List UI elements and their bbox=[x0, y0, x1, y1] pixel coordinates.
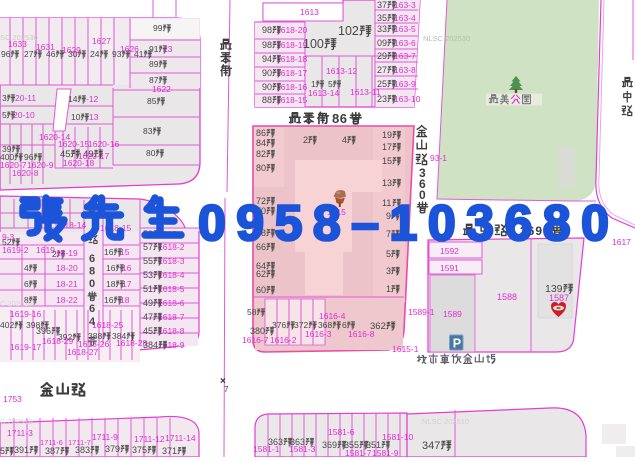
svg-text:94: 94 bbox=[262, 54, 272, 64]
svg-text:8: 8 bbox=[89, 266, 95, 278]
svg-text:6: 6 bbox=[89, 253, 95, 265]
svg-text:86: 86 bbox=[332, 111, 347, 126]
svg-text:1622: 1622 bbox=[152, 84, 171, 94]
svg-text:1753: 1753 bbox=[3, 394, 22, 404]
svg-text:18-21: 18-21 bbox=[56, 279, 78, 289]
svg-text:80: 80 bbox=[146, 148, 156, 158]
svg-text:163-8: 163-8 bbox=[394, 65, 416, 75]
svg-text:55: 55 bbox=[143, 256, 153, 266]
svg-text:376: 376 bbox=[272, 320, 286, 330]
svg-text:7: 7 bbox=[224, 385, 229, 394]
svg-text:1620-8: 1620-8 bbox=[12, 168, 39, 178]
svg-text:1616-8: 1616-8 bbox=[348, 329, 375, 339]
svg-text:1588: 1588 bbox=[497, 292, 517, 302]
svg-text:60: 60 bbox=[256, 285, 266, 295]
svg-text:53: 53 bbox=[143, 270, 153, 280]
svg-text:1613-12: 1613-12 bbox=[326, 66, 357, 76]
svg-text:33: 33 bbox=[377, 24, 387, 34]
svg-text:1618-7: 1618-7 bbox=[158, 312, 185, 322]
svg-text:102: 102 bbox=[338, 24, 359, 38]
svg-text:1616-7: 1616-7 bbox=[242, 335, 269, 345]
svg-text:96: 96 bbox=[1, 49, 11, 59]
svg-text:1613-14: 1613-14 bbox=[308, 88, 339, 98]
svg-text:1613: 1613 bbox=[300, 7, 319, 17]
svg-text:1627: 1627 bbox=[92, 36, 111, 46]
svg-text:1620-18: 1620-18 bbox=[63, 158, 94, 168]
svg-text:0958–103680: 0958–103680 bbox=[198, 195, 619, 251]
svg-text:98: 98 bbox=[262, 40, 272, 50]
svg-text:24: 24 bbox=[90, 49, 100, 59]
svg-text:163-7: 163-7 bbox=[394, 51, 416, 61]
svg-text:1581-10: 1581-10 bbox=[382, 432, 413, 442]
svg-text:47: 47 bbox=[143, 312, 153, 322]
svg-text:09: 09 bbox=[377, 38, 387, 48]
svg-text:1711-14: 1711-14 bbox=[165, 433, 196, 443]
svg-text:1615-1: 1615-1 bbox=[392, 344, 419, 354]
svg-text:23: 23 bbox=[377, 94, 387, 104]
svg-text:23: 23 bbox=[163, 44, 173, 54]
svg-text:16: 16 bbox=[122, 263, 132, 273]
svg-text:51: 51 bbox=[143, 284, 153, 294]
svg-text:18-19: 18-19 bbox=[56, 248, 78, 258]
svg-text:37: 37 bbox=[377, 0, 387, 10]
svg-text:1589: 1589 bbox=[443, 309, 462, 319]
svg-text:1: 1 bbox=[386, 284, 391, 294]
svg-text:98: 98 bbox=[262, 25, 272, 35]
svg-text:SC 202530: SC 202530 bbox=[0, 33, 38, 42]
svg-text:88: 88 bbox=[262, 95, 272, 105]
svg-text:1616-3: 1616-3 bbox=[305, 329, 332, 339]
svg-text:99: 99 bbox=[153, 23, 163, 33]
svg-text:4: 4 bbox=[24, 263, 29, 273]
svg-text:1618-15: 1618-15 bbox=[100, 223, 131, 233]
svg-text:C 202510: C 202510 bbox=[0, 417, 33, 426]
svg-text:-12: -12 bbox=[86, 94, 99, 104]
svg-text:83: 83 bbox=[143, 126, 153, 136]
svg-text:4: 4 bbox=[89, 316, 96, 328]
svg-text:45: 45 bbox=[143, 326, 153, 336]
svg-text:1620-15: 1620-15 bbox=[58, 139, 89, 149]
svg-text:NLSC 202530: NLSC 202530 bbox=[423, 34, 470, 43]
svg-text:3: 3 bbox=[2, 93, 7, 103]
svg-text:1619-17: 1619-17 bbox=[10, 342, 41, 352]
svg-text:16: 16 bbox=[104, 247, 114, 257]
svg-text:49: 49 bbox=[143, 298, 153, 308]
svg-text:375: 375 bbox=[132, 445, 147, 455]
svg-text:163-10: 163-10 bbox=[394, 94, 421, 104]
svg-text:163-4: 163-4 bbox=[394, 13, 416, 23]
svg-text:15: 15 bbox=[120, 247, 130, 257]
svg-text:402: 402 bbox=[0, 320, 14, 330]
svg-text:1618-8: 1618-8 bbox=[158, 326, 185, 336]
svg-text:0: 0 bbox=[89, 278, 95, 290]
svg-text:13: 13 bbox=[382, 178, 392, 188]
svg-text:9-3: 9-3 bbox=[2, 232, 15, 242]
svg-text:1620-16: 1620-16 bbox=[88, 139, 119, 149]
svg-text:84: 84 bbox=[256, 138, 266, 148]
svg-text:371: 371 bbox=[162, 446, 177, 456]
svg-text:15: 15 bbox=[382, 156, 392, 166]
svg-text:85: 85 bbox=[147, 96, 157, 106]
svg-text:13: 13 bbox=[89, 112, 99, 122]
svg-text:86: 86 bbox=[256, 128, 266, 138]
svg-text:100: 100 bbox=[303, 37, 324, 51]
svg-text:14: 14 bbox=[68, 94, 78, 104]
svg-text:1587: 1587 bbox=[549, 293, 569, 303]
svg-text:347: 347 bbox=[422, 440, 440, 452]
svg-text:6: 6 bbox=[24, 279, 29, 289]
svg-text:1618-5: 1618-5 bbox=[158, 284, 185, 294]
svg-text:383: 383 bbox=[75, 445, 90, 455]
svg-text:1581-3: 1581-3 bbox=[289, 444, 316, 454]
svg-text:91: 91 bbox=[149, 44, 159, 54]
svg-text:18-20: 18-20 bbox=[56, 263, 78, 273]
svg-text:2: 2 bbox=[303, 135, 308, 145]
svg-text:1618-6: 1618-6 bbox=[158, 298, 185, 308]
svg-text:163-3: 163-3 bbox=[394, 0, 416, 10]
svg-text:19: 19 bbox=[382, 130, 392, 140]
svg-text:163-6: 163-6 bbox=[394, 38, 416, 48]
svg-text:93-1: 93-1 bbox=[430, 153, 447, 163]
svg-text:1618-4: 1618-4 bbox=[158, 270, 185, 280]
svg-text:1631: 1631 bbox=[36, 42, 55, 52]
svg-text:20-10: 20-10 bbox=[13, 110, 35, 120]
svg-text:369: 369 bbox=[322, 440, 337, 450]
svg-text:1581-6: 1581-6 bbox=[328, 427, 355, 437]
svg-text:396: 396 bbox=[36, 326, 51, 336]
svg-text:1581-9: 1581-9 bbox=[372, 448, 399, 457]
svg-text:58: 58 bbox=[247, 307, 257, 317]
svg-text:1616-2: 1616-2 bbox=[270, 335, 297, 345]
svg-text:163-9: 163-9 bbox=[394, 79, 416, 89]
svg-text:80: 80 bbox=[256, 163, 266, 173]
svg-text:1589-1: 1589-1 bbox=[408, 307, 435, 317]
svg-text:62: 62 bbox=[256, 269, 266, 279]
svg-text:P: P bbox=[453, 337, 461, 351]
svg-text:1581-7: 1581-7 bbox=[345, 448, 372, 457]
svg-text:18: 18 bbox=[120, 295, 130, 305]
svg-text:90: 90 bbox=[262, 68, 272, 78]
svg-text:1618-3: 1618-3 bbox=[158, 256, 185, 266]
svg-text:90: 90 bbox=[262, 82, 272, 92]
svg-text:35: 35 bbox=[377, 13, 387, 23]
svg-text:27: 27 bbox=[24, 49, 34, 59]
svg-text:82: 82 bbox=[256, 149, 266, 159]
svg-text:17: 17 bbox=[382, 142, 392, 152]
svg-text:10: 10 bbox=[71, 112, 81, 122]
svg-text:1591: 1591 bbox=[440, 263, 459, 273]
svg-text:6: 6 bbox=[89, 303, 95, 315]
svg-text:16: 16 bbox=[106, 263, 116, 273]
svg-text:18-22: 18-22 bbox=[56, 295, 78, 305]
svg-text:3: 3 bbox=[386, 266, 391, 276]
svg-text:16: 16 bbox=[104, 295, 114, 305]
svg-text:57: 57 bbox=[143, 242, 153, 252]
svg-text:1711-3: 1711-3 bbox=[7, 428, 33, 438]
svg-text:27: 27 bbox=[377, 65, 387, 75]
svg-text:384: 384 bbox=[143, 340, 158, 350]
svg-text:391: 391 bbox=[14, 445, 29, 455]
svg-text:1626: 1626 bbox=[120, 44, 139, 54]
svg-text:25: 25 bbox=[377, 79, 387, 89]
svg-text:5: 5 bbox=[2, 110, 7, 120]
svg-text:29: 29 bbox=[377, 51, 387, 61]
svg-text:163-5: 163-5 bbox=[394, 24, 416, 34]
svg-text:1629: 1629 bbox=[62, 45, 81, 55]
svg-text:1619-16: 1619-16 bbox=[10, 309, 41, 319]
svg-text:NLSC 202510: NLSC 202510 bbox=[422, 417, 469, 426]
svg-text:387: 387 bbox=[45, 446, 60, 456]
svg-text:1618-2: 1618-2 bbox=[158, 242, 185, 252]
svg-text:384: 384 bbox=[112, 331, 126, 341]
svg-text:379: 379 bbox=[105, 444, 120, 454]
svg-text:5: 5 bbox=[0, 446, 5, 456]
svg-text:4: 4 bbox=[342, 135, 347, 145]
svg-text:1619-2: 1619-2 bbox=[2, 245, 29, 255]
svg-text:1711-9: 1711-9 bbox=[92, 432, 118, 442]
svg-text:18: 18 bbox=[106, 279, 116, 289]
svg-text:1581-1: 1581-1 bbox=[253, 444, 280, 454]
svg-text:17: 17 bbox=[122, 279, 132, 289]
svg-text:1618-29: 1618-29 bbox=[42, 336, 73, 346]
svg-text:20-11: 20-11 bbox=[15, 93, 36, 103]
svg-text:1618-25: 1618-25 bbox=[92, 320, 123, 330]
svg-text:C 202510: C 202510 bbox=[0, 299, 33, 308]
svg-text:89: 89 bbox=[149, 59, 159, 69]
svg-text:1711-12: 1711-12 bbox=[134, 434, 165, 444]
svg-text:6: 6 bbox=[342, 320, 347, 330]
